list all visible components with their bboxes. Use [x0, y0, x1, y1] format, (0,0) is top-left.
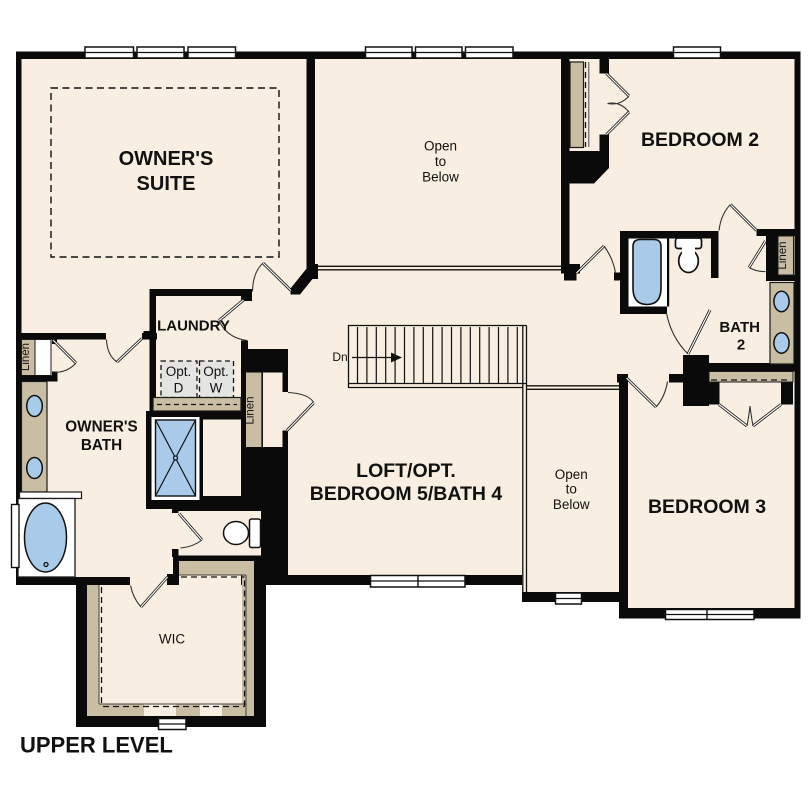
svg-text:Dn: Dn — [332, 350, 347, 364]
svg-text:D: D — [174, 381, 184, 396]
svg-text:Below: Below — [422, 170, 459, 185]
svg-text:Linen: Linen — [245, 396, 257, 424]
svg-text:SUITE: SUITE — [137, 173, 196, 195]
svg-text:LAUNDRY: LAUNDRY — [157, 318, 230, 335]
svg-text:BATH: BATH — [719, 319, 760, 336]
svg-text:Linen: Linen — [20, 343, 32, 371]
svg-text:W: W — [210, 381, 223, 396]
svg-text:OWNER'S: OWNER'S — [65, 419, 137, 436]
svg-text:Opt.: Opt. — [166, 364, 192, 379]
svg-text:BATH: BATH — [81, 437, 122, 454]
svg-text:LOFT/OPT.: LOFT/OPT. — [356, 460, 456, 482]
svg-text:Open: Open — [555, 467, 588, 482]
svg-text:UPPER LEVEL: UPPER LEVEL — [20, 733, 173, 758]
svg-text:Opt.: Opt. — [203, 364, 229, 379]
svg-text:BEDROOM 2: BEDROOM 2 — [641, 129, 759, 151]
svg-text:to: to — [435, 154, 446, 169]
svg-text:Open: Open — [424, 139, 457, 154]
svg-text:WIC: WIC — [159, 632, 185, 647]
svg-text:to: to — [566, 482, 577, 497]
svg-text:Linen: Linen — [777, 241, 789, 269]
svg-text:BEDROOM 3: BEDROOM 3 — [648, 496, 766, 518]
svg-text:2: 2 — [737, 337, 745, 354]
svg-text:OWNER'S: OWNER'S — [119, 148, 214, 170]
svg-text:Below: Below — [553, 497, 590, 512]
svg-text:BEDROOM 5/BATH 4: BEDROOM 5/BATH 4 — [310, 483, 503, 505]
